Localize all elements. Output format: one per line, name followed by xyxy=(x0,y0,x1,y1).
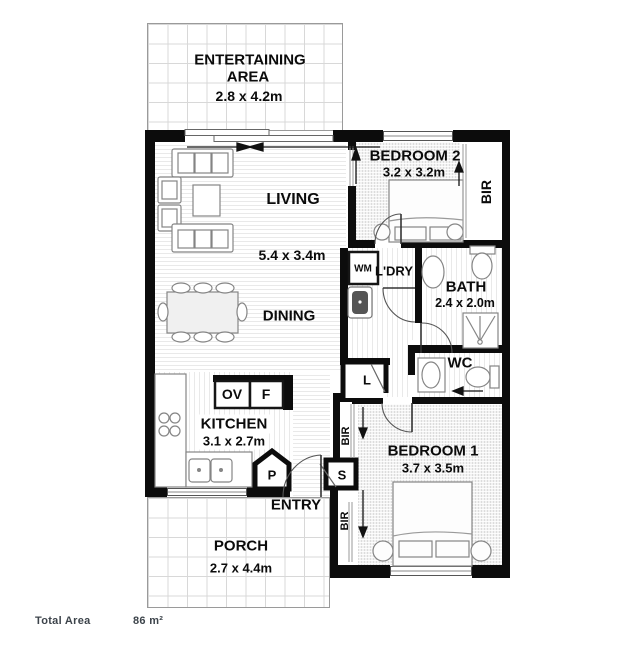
kitchen-label: KITCHEN xyxy=(197,415,272,434)
bedroom1-window xyxy=(390,566,472,576)
linen-label: L xyxy=(363,373,371,388)
bedroom1-dims: 3.7 x 3.5m xyxy=(402,461,464,476)
wall xyxy=(348,142,356,150)
wall xyxy=(333,130,383,142)
hall-robe-bottom-label: BIR xyxy=(339,512,351,531)
hall-robe-top-label: BIR xyxy=(340,427,352,446)
bath-label: BATH xyxy=(446,279,487,296)
wall xyxy=(330,487,338,565)
wall xyxy=(333,402,340,460)
entertaining-label-line1: ENTERTAINING xyxy=(194,52,305,69)
wall xyxy=(472,565,510,578)
wall xyxy=(415,248,422,323)
porch-dims: 2.7 x 4.4m xyxy=(210,561,272,576)
sliding-door-panels xyxy=(185,130,333,142)
kitchen-window xyxy=(167,488,247,496)
wall xyxy=(145,130,155,497)
entry-label: ENTRY xyxy=(271,497,321,514)
entry-corridor-floor xyxy=(293,372,330,497)
wall xyxy=(352,397,383,404)
bedroom1-label: BEDROOM 1 xyxy=(388,443,479,460)
bedroom2-robe-label: BIR xyxy=(478,180,494,204)
total-area-label: Total Area xyxy=(35,615,91,627)
oven-label: OV xyxy=(222,386,242,402)
floor-plan: ENTERTAINING AREA 2.8 x 4.2m LIVING 5.4 … xyxy=(0,0,633,650)
entertaining-dims: 2.8 x 4.2m xyxy=(216,88,283,104)
wall xyxy=(330,565,390,578)
laundry-label: L'DRY xyxy=(375,264,413,279)
total-area-value: 86 m² xyxy=(133,615,163,627)
wall xyxy=(412,397,502,404)
living-dims: 5.4 x 3.4m xyxy=(259,247,326,263)
wall xyxy=(247,487,290,497)
laundry-floor xyxy=(348,248,415,340)
entertaining-label-line2: AREA xyxy=(227,69,270,86)
dining-label: DINING xyxy=(263,308,316,325)
wall xyxy=(213,375,293,382)
wc-label: WC xyxy=(448,355,473,372)
living-label: LIVING xyxy=(266,191,319,209)
hall-floor xyxy=(348,340,408,397)
pantry-label: P xyxy=(268,468,277,483)
kitchen-dims: 3.1 x 2.7m xyxy=(199,433,269,450)
wall xyxy=(340,248,348,365)
wall xyxy=(408,353,415,375)
wall xyxy=(502,130,510,578)
fridge-label: F xyxy=(262,386,271,402)
bedroom2-label: BEDROOM 2 xyxy=(370,148,461,165)
store-label: S xyxy=(338,468,347,483)
bedroom2-window xyxy=(383,131,453,141)
wall xyxy=(348,240,375,248)
wall xyxy=(348,186,356,248)
washer-label: WM xyxy=(354,264,372,275)
wall xyxy=(401,240,510,248)
wall xyxy=(145,487,167,497)
bedroom1-floor xyxy=(358,404,502,565)
porch-label: PORCH xyxy=(214,538,268,555)
wall xyxy=(408,345,510,353)
wall xyxy=(283,375,293,410)
bath-dims: 2.4 x 2.0m xyxy=(435,296,495,310)
wall xyxy=(340,358,390,365)
bedroom2-dims: 3.2 x 3.2m xyxy=(383,165,445,180)
